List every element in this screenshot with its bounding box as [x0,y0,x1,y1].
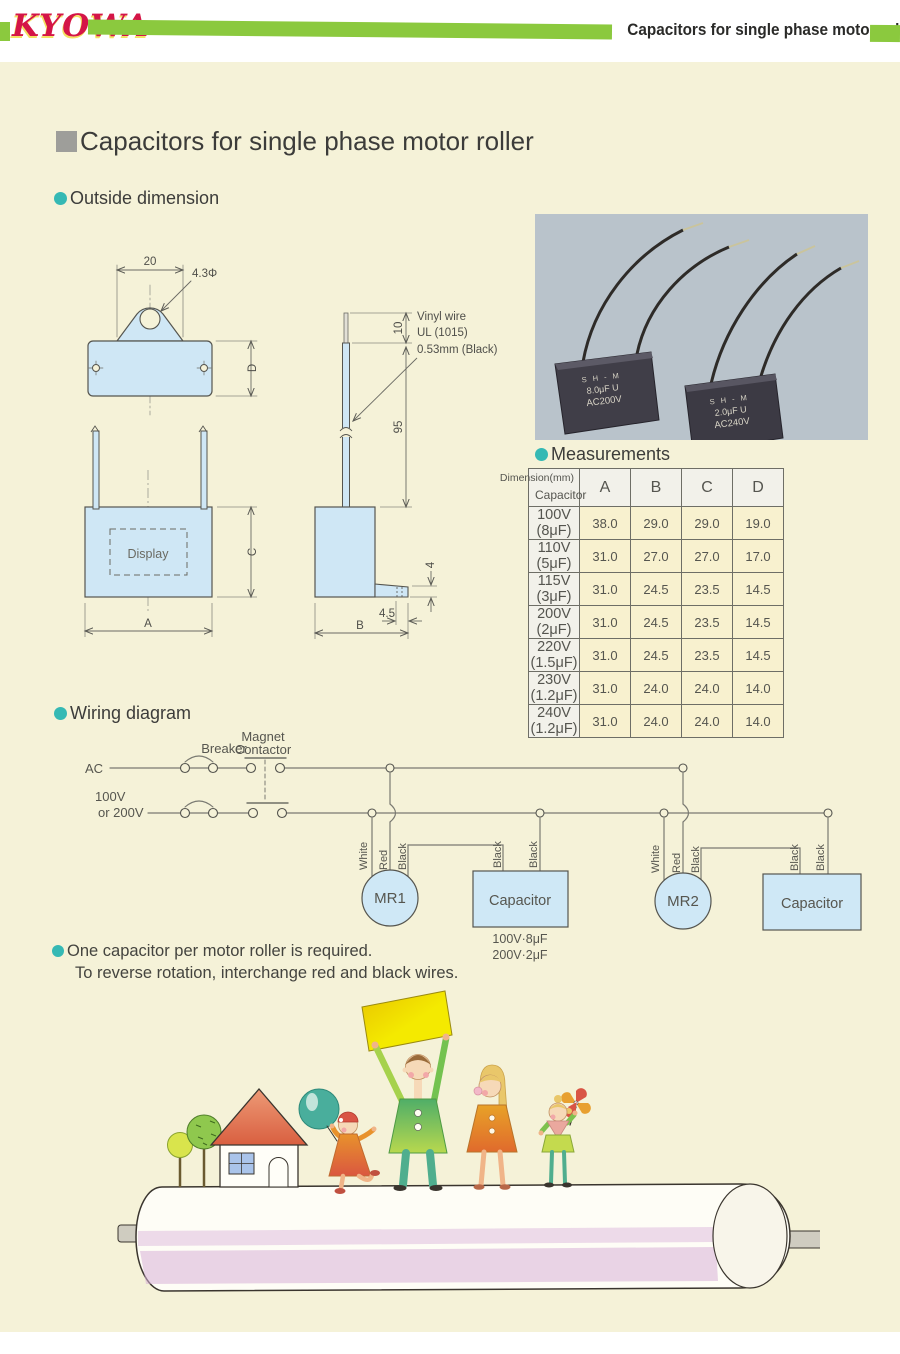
teal-bullet-icon [54,192,67,205]
section-outside-dimension: Outside dimension [54,188,219,209]
capacitor-label: 200V (2μF) [529,606,580,639]
dimension-value: 27.0 [631,540,682,573]
svg-text:Capacitor: Capacitor [489,893,551,909]
dimension-value: 14.5 [733,606,784,639]
table-row: 230V (1.2μF)31.024.024.014.0 [529,672,784,705]
svg-text:10: 10 [393,322,405,335]
header-green-bar [88,19,612,39]
dimension-value: 31.0 [580,540,631,573]
dimension-value: 14.0 [733,672,784,705]
svg-text:Vinyl wire: Vinyl wire [417,311,466,323]
figure-woman [467,1065,517,1190]
column-header-b: B [631,469,682,507]
svg-text:MR1: MR1 [374,890,406,907]
svg-text:Contactor: Contactor [235,742,292,757]
outside-dimension-drawing: 20 4.3Φ D Display C [60,215,520,665]
table-row: 100V (8μF)38.029.029.019.0 [529,507,784,540]
dimension-value: 31.0 [580,639,631,672]
svg-text:Black: Black [528,841,540,868]
svg-text:4.5: 4.5 [379,608,395,620]
wiring-diagram: AC 100V or 200V Breaker Magnet Contactor… [50,728,880,968]
note-line-2: To reverse rotation, interchange red and… [75,962,458,984]
svg-text:200V·2μF: 200V·2μF [492,948,548,962]
svg-text:Display: Display [128,547,170,561]
page-title: Capacitors for single phase motor roller [56,126,534,157]
page-title-text: Capacitors for single phase motor roller [80,126,534,157]
dimension-value: 38.0 [580,507,631,540]
svg-text:White: White [358,842,370,870]
svg-text:4: 4 [425,561,437,568]
dimension-value: 31.0 [580,672,631,705]
figure-flag-man [362,991,452,1191]
capacitor-label: 115V (3μF) [529,573,580,606]
axle-right [786,1231,820,1248]
tree-small [168,1133,193,1188]
table-row: 110V (5μF)31.027.027.017.0 [529,540,784,573]
house-door [269,1158,288,1188]
table-row: 220V (1.5μF)31.024.523.514.5 [529,639,784,672]
dimension-value: 24.5 [631,639,682,672]
section-wiring-diagram: Wiring diagram [54,703,191,724]
figure-clown [299,1089,380,1194]
svg-text:100V·8μF: 100V·8μF [492,932,548,946]
figure-girl [539,1088,591,1187]
dimension-value: 17.0 [733,540,784,573]
section-measurements: Measurements [535,444,670,465]
drawing-side-view: 10 95 Vinyl wire UL (1015) 0.53mm (Black… [315,311,498,639]
svg-text:Red: Red [378,850,390,870]
svg-text:or 200V: or 200V [98,805,144,820]
teal-bullet-icon [535,448,548,461]
dimension-value: 24.0 [631,672,682,705]
dimension-value: 29.0 [682,507,733,540]
catalog-page: KYOWA Capacitors for single phase motor … [0,0,900,1354]
svg-text:AC: AC [85,761,103,776]
green-accent-right [870,25,900,42]
svg-text:95: 95 [393,421,405,434]
svg-text:C: C [247,548,259,556]
svg-text:20: 20 [144,256,157,268]
gray-square-bullet [56,131,77,152]
capacitor-photo-art: S H - M 8.0μF U AC200V S H - M 2.0μF U A… [535,214,868,440]
svg-text:UL (1015): UL (1015) [417,327,468,339]
capacitor-label: 220V (1.5μF) [529,639,580,672]
svg-text:D: D [247,364,259,372]
column-header-a: A [580,469,631,507]
capacitor-label: 230V (1.2μF) [529,672,580,705]
svg-text:0.53mm (Black): 0.53mm (Black) [417,344,498,356]
column-header-d: D [733,469,784,507]
svg-text:Black: Black [492,841,504,868]
house [211,1089,307,1187]
svg-text:MR2: MR2 [667,893,699,910]
mr2-branch-wires [664,772,828,883]
capacitor-label: 110V (5μF) [529,540,580,573]
dimension-value: 23.5 [682,639,733,672]
dimension-value: 29.0 [631,507,682,540]
svg-text:White: White [650,845,662,873]
header-page-title: Capacitors for single phase motor roller [595,20,867,40]
table-header-row: Dimension(mm) Capacitor ABCD [529,469,784,507]
header-page-title-text: Capacitors for single phase motor roller [627,20,900,40]
svg-text:Black: Black [397,843,409,870]
dimension-value: 19.0 [733,507,784,540]
note-line-1: One capacitor per motor roller is requir… [67,940,372,962]
svg-text:Red: Red [671,853,683,873]
roller-end-cap [713,1184,787,1288]
page-bottom-margin [0,1332,900,1354]
roller [118,1184,820,1291]
capacitor-label: 100V (8μF) [529,507,580,540]
measurements-heading: Measurements [551,444,670,465]
dimension-value: 23.5 [682,573,733,606]
svg-text:B: B [356,620,364,632]
dimension-value: 14.5 [733,573,784,606]
table-row: 115V (3μF)31.024.523.514.5 [529,573,784,606]
tree-large [187,1115,221,1187]
table-row: 200V (2μF)31.024.523.514.5 [529,606,784,639]
teal-bullet-icon [54,707,67,720]
dimension-value: 24.5 [631,573,682,606]
outside-dimension-heading: Outside dimension [70,188,219,209]
svg-text:A: A [144,618,152,630]
green-accent-left [0,22,10,41]
svg-text:Black: Black [815,844,827,871]
svg-text:Black: Black [690,846,702,873]
corner-capacitor-label: Capacitor [535,488,586,502]
balloon [299,1089,339,1129]
wiring-heading: Wiring diagram [70,703,191,724]
note-block: One capacitor per motor roller is requir… [52,940,458,984]
drawing-top-view: 20 4.3Φ D [88,256,259,415]
dimension-value: 31.0 [580,573,631,606]
roller-illustration [100,985,820,1330]
teal-bullet-icon [52,945,64,957]
dimension-value: 14.5 [733,639,784,672]
corner-dimension-label: Dimension(mm) [500,472,574,484]
table-corner-cell: Dimension(mm) Capacitor [529,469,580,507]
dimension-value: 27.0 [682,540,733,573]
dimension-value: 24.5 [631,606,682,639]
dimension-value: 31.0 [580,606,631,639]
column-header-c: C [682,469,733,507]
svg-text:Capacitor: Capacitor [781,896,843,912]
svg-text:4.3Φ: 4.3Φ [192,268,217,280]
dimension-value: 23.5 [682,606,733,639]
svg-text:Black: Black [789,844,801,871]
drawing-front-view: Display C A [85,426,259,637]
dimension-value: 24.0 [682,672,733,705]
svg-text:100V: 100V [95,789,126,804]
measurements-table: Dimension(mm) Capacitor ABCD 100V (8μF)3… [528,468,784,738]
product-photo: S H - M 8.0μF U AC200V S H - M 2.0μF U A… [535,214,868,440]
